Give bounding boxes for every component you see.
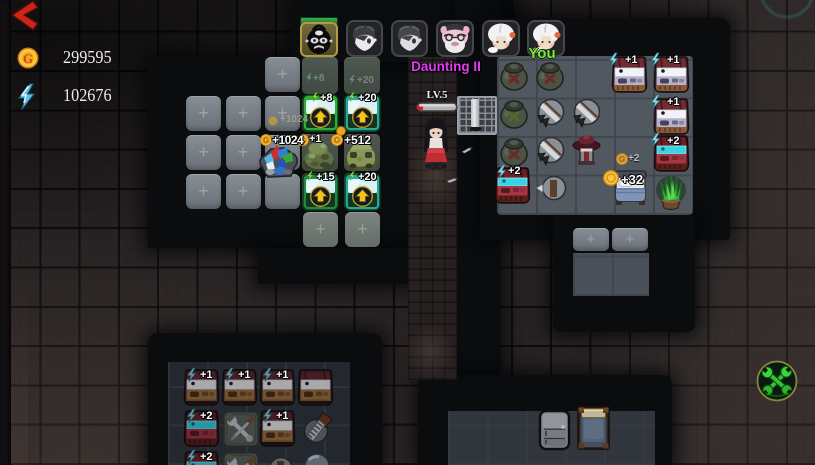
svg-text:G: G bbox=[23, 51, 33, 66]
